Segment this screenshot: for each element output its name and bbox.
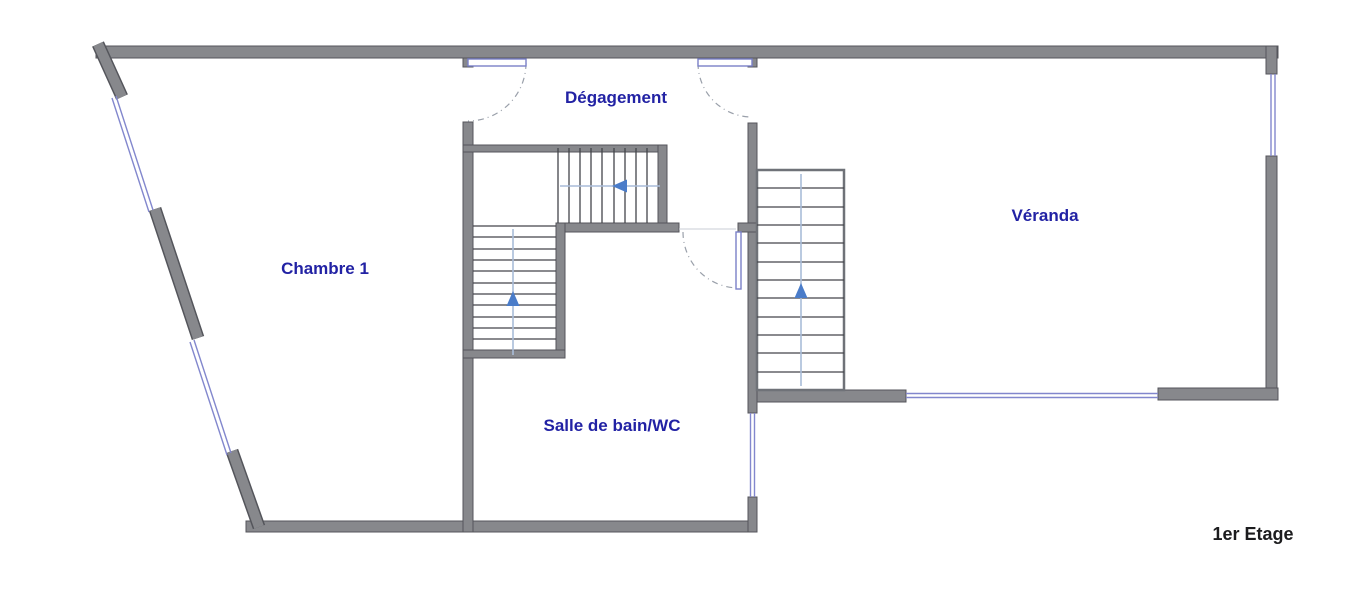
wall-top	[96, 46, 1278, 58]
room-labels: Chambre 1 Dégagement Salle de bain/WC Vé…	[281, 88, 1293, 544]
floor-plan-drawing: Chambre 1 Dégagement Salle de bain/WC Vé…	[0, 0, 1366, 600]
wall-upper-stair-right	[658, 145, 667, 232]
door-veranda	[698, 59, 752, 117]
room-label-degagement: Dégagement	[565, 88, 667, 107]
wall-veranda-bottom-right	[1158, 388, 1278, 400]
wall-lower-stair-bottom	[463, 350, 565, 358]
door-chambre	[468, 59, 526, 121]
room-label-salle-de-bain: Salle de bain/WC	[544, 416, 681, 435]
wall-bath-top	[557, 223, 679, 232]
door3-hinge-stub	[738, 223, 757, 232]
door-swing-arc	[698, 63, 752, 117]
stairs-upper-run	[558, 148, 660, 223]
stairs-veranda-run	[757, 170, 844, 390]
floor-plan-canvas: Chambre 1 Dégagement Salle de bain/WC Vé…	[0, 0, 1366, 600]
window-bath-right	[751, 413, 755, 497]
door-swing-arc	[468, 63, 526, 121]
room-label-veranda: Véranda	[1011, 206, 1079, 225]
stair-treads	[473, 226, 556, 339]
window-veranda-bottom	[906, 394, 1158, 398]
wall-mid-vertical	[748, 123, 757, 413]
door-leaf	[468, 59, 526, 66]
wall-right-main	[1266, 156, 1277, 398]
door-leaf	[736, 232, 741, 289]
wall-interior-left	[463, 122, 473, 532]
floor-title: 1er Etage	[1212, 524, 1293, 544]
wall-slant-c	[232, 451, 259, 527]
wall-lower-stair-right	[556, 223, 565, 358]
wall-veranda-bottom-left	[748, 390, 906, 402]
stairs-lower-run	[473, 226, 556, 355]
door-swing-arc	[683, 232, 739, 288]
windows	[112, 74, 1275, 497]
arrow-up-icon	[795, 283, 808, 298]
room-label-chambre-1: Chambre 1	[281, 259, 369, 278]
walls	[96, 44, 1278, 532]
window-veranda-right	[1271, 74, 1275, 156]
window-slant-upper	[112, 96, 153, 212]
wall-bath-right-stub	[748, 497, 757, 532]
wall-slant-b	[155, 209, 198, 338]
door-bath	[679, 229, 741, 289]
wall-right-top-stub	[1266, 46, 1277, 74]
window-slant-lower	[190, 340, 231, 455]
door-leaf	[698, 59, 752, 66]
arrow-up-icon	[507, 291, 520, 306]
wall-bottom	[246, 521, 757, 532]
